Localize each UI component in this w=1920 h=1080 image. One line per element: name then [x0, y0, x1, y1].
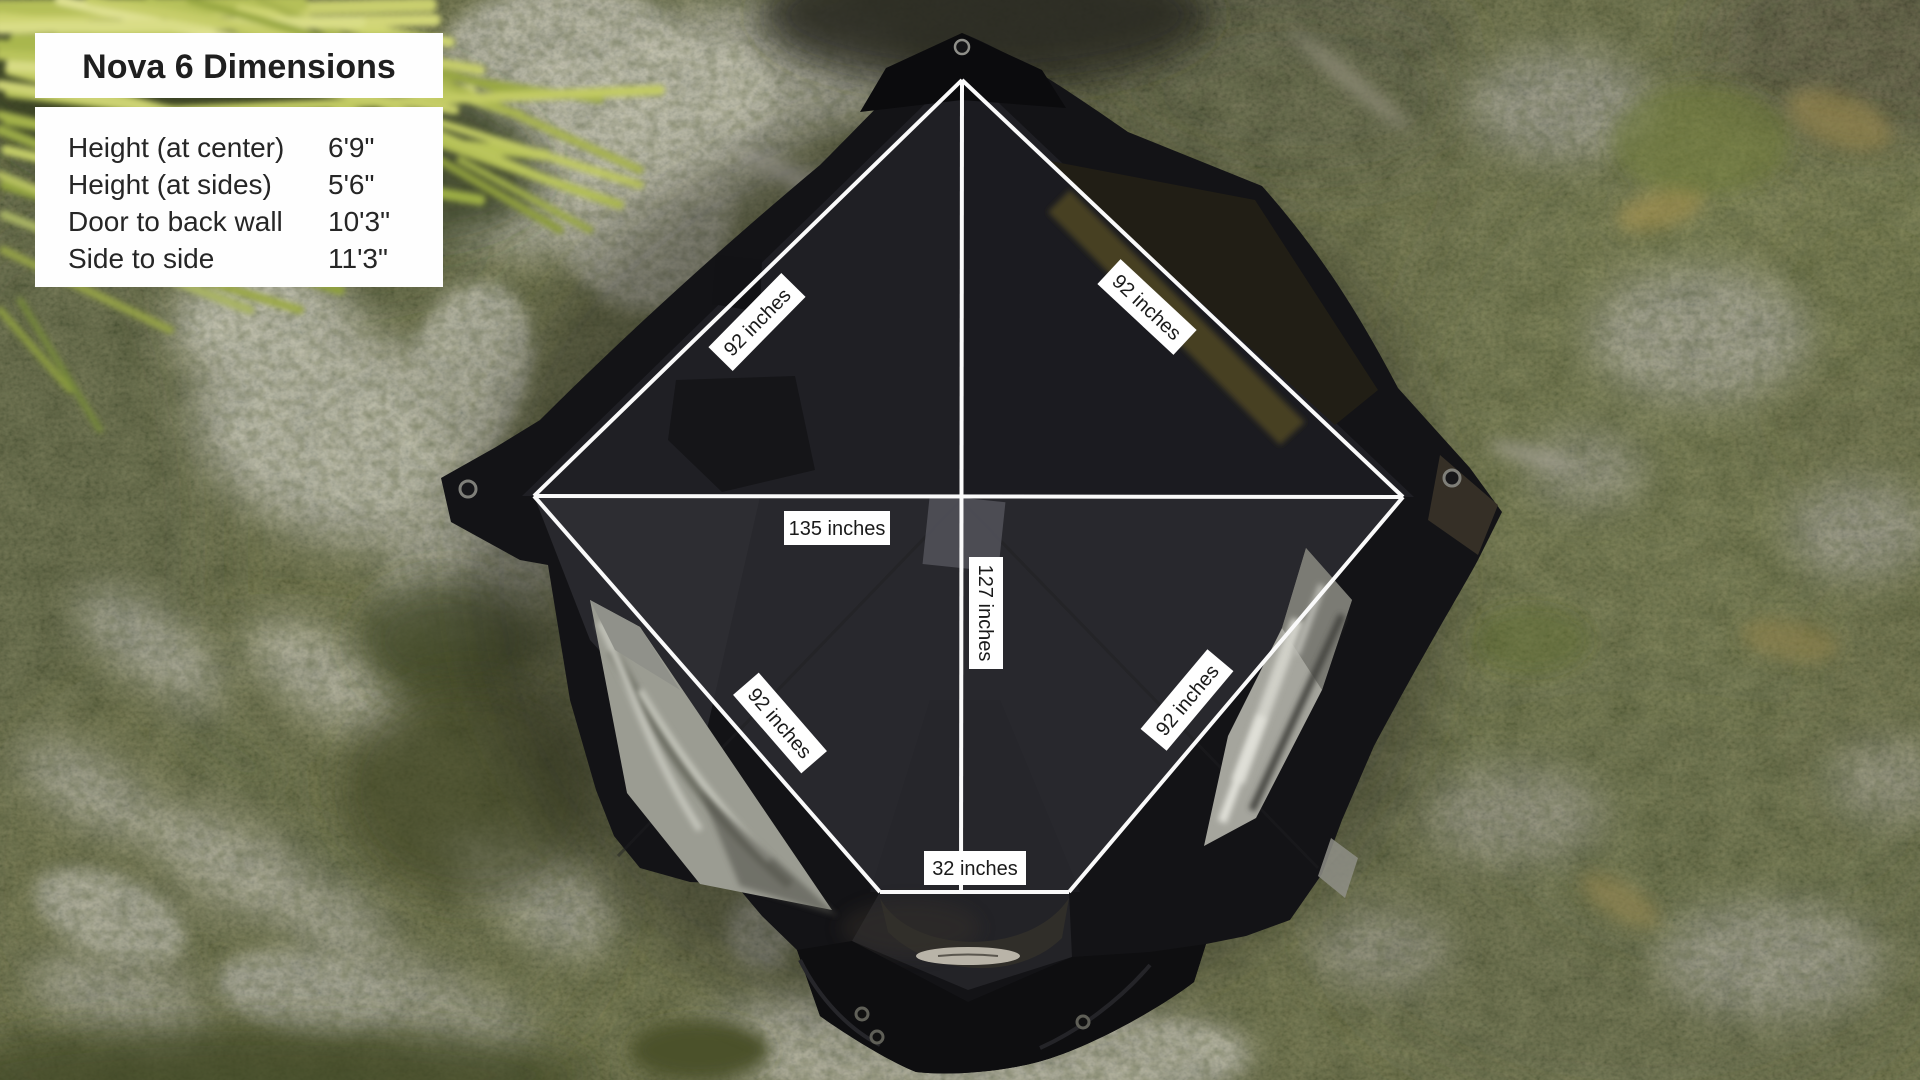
svg-text:32 inches: 32 inches: [932, 858, 1018, 880]
svg-text:11'3": 11'3": [328, 243, 388, 274]
svg-text:10'3": 10'3": [328, 206, 390, 237]
svg-text:Door to back wall: Door to back wall: [68, 206, 283, 237]
svg-text:Nova 6 Dimensions: Nova 6 Dimensions: [82, 48, 396, 86]
svg-text:Side to side: Side to side: [68, 243, 214, 274]
svg-text:Height (at sides): Height (at sides): [68, 169, 272, 200]
svg-text:135 inches: 135 inches: [789, 518, 886, 540]
svg-text:5'6": 5'6": [328, 169, 374, 200]
svg-text:6'9": 6'9": [328, 132, 374, 163]
svg-text:127 inches: 127 inches: [974, 565, 996, 662]
svg-text:Height (at center): Height (at center): [68, 132, 284, 163]
